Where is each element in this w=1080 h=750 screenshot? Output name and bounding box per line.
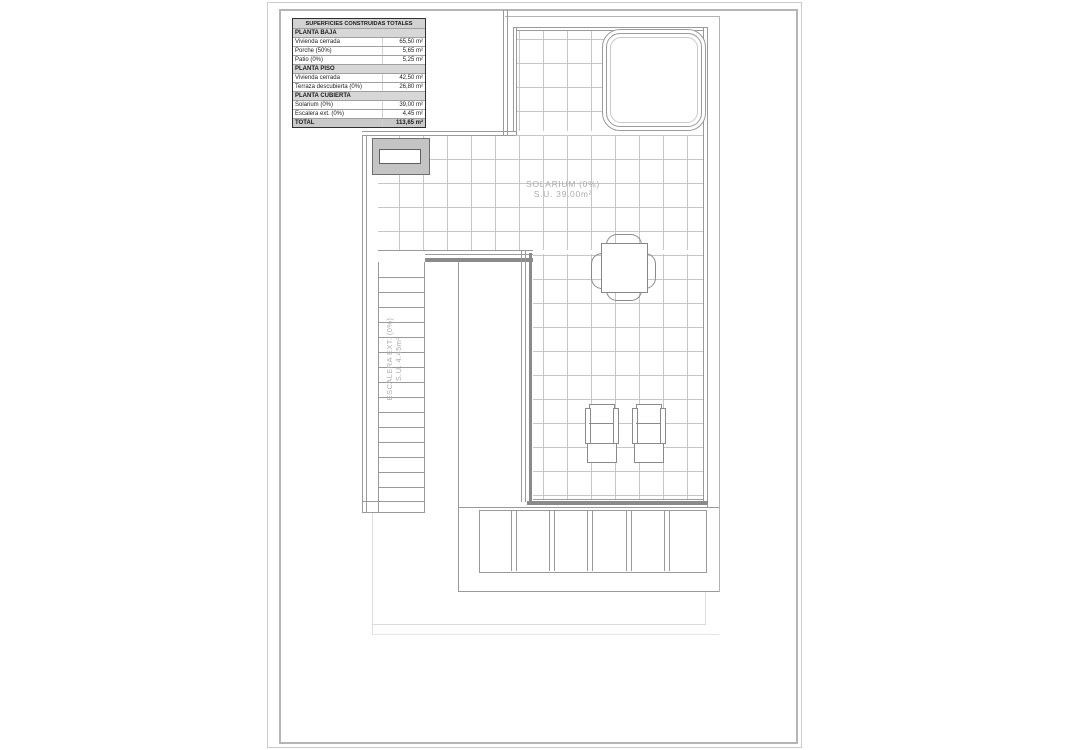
areas-table-rows: PLANTA BAJAVivienda cerrada65,50 m²Porch… <box>293 29 425 127</box>
table-row-label: Vivienda cerrada <box>293 75 382 81</box>
section-header-row: PLANTA BAJA <box>293 29 425 38</box>
table-row: Terraza descubierta (0%)26,80 m² <box>293 83 425 92</box>
jacuzzi-water-edge <box>610 37 698 123</box>
table-row: Patio (0%)5,25 m² <box>293 56 425 65</box>
table-row-value: 5,25 m² <box>382 56 425 64</box>
context-outline-right <box>719 16 720 592</box>
lounger-arm-right <box>613 408 619 444</box>
terrace-bottom-thin <box>533 499 703 500</box>
section-header-row-label: PLANTA CUBIERTA <box>293 93 425 99</box>
stairs-label-area: S.U. 4.45m² <box>394 289 403 429</box>
lounger-crossbar <box>589 423 614 424</box>
void-top-mid <box>425 254 533 255</box>
solarium-label-name: SOLARIUM (0%) <box>463 179 663 189</box>
jacuzzi <box>602 29 706 131</box>
total-row-label: TOTAL <box>293 120 382 126</box>
context-outline-top <box>505 16 719 17</box>
pergola-beam <box>626 510 632 571</box>
table-row-value: 26,80 m² <box>382 83 425 91</box>
section-header-row: PLANTA PISO <box>293 65 425 74</box>
section-header-row-label: PLANTA PISO <box>293 66 425 72</box>
total-row: TOTAL113,65 m² <box>293 119 425 127</box>
pergola-bottom-edge <box>458 591 719 592</box>
room-wall-bottom-inner <box>362 135 516 136</box>
table-row-value: 4,45 m² <box>382 110 425 118</box>
lounger-arm-left <box>632 408 638 444</box>
terrace-top-outer <box>513 27 708 28</box>
lounger-back <box>589 404 615 444</box>
lounger-crossbar <box>636 423 661 424</box>
table-row-label: Patio (0%) <box>293 57 382 63</box>
section-header-row-label: PLANTA BAJA <box>293 30 425 36</box>
lounger-foot <box>587 443 617 463</box>
floor-plan: SOLARIUM (0%) S.U. 39.00m² ESCALERA EXT.… <box>0 0 1080 750</box>
parapet-left-outer <box>362 135 363 513</box>
terrace-left-outer <box>513 27 514 132</box>
terrace-bottom-wall <box>527 501 708 505</box>
void-right-wall <box>529 253 532 502</box>
pergola-beam <box>664 510 670 571</box>
void-top-thin <box>378 250 533 251</box>
table-row-label: Solarium (0%) <box>293 102 382 108</box>
chimney-vent <box>379 149 421 164</box>
table-row-value: 39,00 m² <box>382 101 425 109</box>
stairs-label-name: ESCALERA EXT. (0%) <box>385 289 394 429</box>
void-right-line-b <box>525 250 526 502</box>
lounger-arm-left <box>585 408 591 444</box>
plot-boundary-right <box>705 592 706 625</box>
terrace-right-outer <box>707 27 708 508</box>
table-row: Escalera ext. (0%)4,45 m² <box>293 110 425 119</box>
void-left-wall <box>458 262 459 592</box>
areas-table-title-text: SUPERFICIES CONSTRUIDAS TOTALES <box>305 21 412 27</box>
table-row: Porche (50%)5,65 m² <box>293 47 425 56</box>
parapet-left-inner <box>366 135 367 513</box>
table-row-value: 42,50 m² <box>382 74 425 82</box>
table-row: Vivienda cerrada65,50 m² <box>293 38 425 47</box>
plot-boundary-bottom-b <box>372 634 719 635</box>
lounger-foot <box>634 443 664 463</box>
section-header-row: PLANTA CUBIERTA <box>293 92 425 101</box>
stairs-right-edge <box>424 262 425 513</box>
terrace-bottom-outline <box>458 507 719 508</box>
dining-table <box>601 243 648 293</box>
table-row: Vivienda cerrada42,50 m² <box>293 74 425 83</box>
table-row: Solarium (0%)39,00 m² <box>293 101 425 110</box>
void-top-wall <box>425 258 533 262</box>
plot-boundary-bottom-a <box>372 624 705 625</box>
sun-lounger <box>632 404 665 460</box>
stairs-area-label: ESCALERA EXT. (0%) S.U. 4.45m² <box>385 289 411 429</box>
total-row-value: 113,65 m² <box>382 119 425 127</box>
terrace-left-inner <box>516 27 517 135</box>
stairs-bottom-line-a <box>362 501 424 502</box>
room-wall-right-outer <box>503 10 504 135</box>
plot-boundary-left <box>372 513 373 635</box>
solarium-area-label: SOLARIUM (0%) S.U. 39.00m² <box>463 179 663 199</box>
room-wall-right-inner <box>507 10 508 135</box>
table-row-value: 65,50 m² <box>382 38 425 46</box>
solarium-label-area: S.U. 39.00m² <box>463 189 663 199</box>
pergola-beam <box>587 510 593 571</box>
chimney <box>372 138 430 175</box>
lounger-arm-right <box>660 408 666 444</box>
table-row-label: Porche (50%) <box>293 48 382 54</box>
pergola-beam <box>549 510 555 571</box>
table-row-label: Vivienda cerrada <box>293 39 382 45</box>
void-right-line-a <box>521 250 522 502</box>
table-row-label: Escalera ext. (0%) <box>293 111 382 117</box>
pergola-beam <box>511 510 517 571</box>
lounger-back <box>636 404 662 444</box>
table-row-value: 5,65 m² <box>382 47 425 55</box>
sun-lounger <box>585 404 618 460</box>
table-row-label: Terraza descubierta (0%) <box>293 84 382 90</box>
areas-table: SUPERFICIES CONSTRUIDAS TOTALES PLANTA B… <box>292 18 426 128</box>
areas-table-title: SUPERFICIES CONSTRUIDAS TOTALES <box>293 19 425 29</box>
room-wall-bottom-outer <box>362 131 516 132</box>
